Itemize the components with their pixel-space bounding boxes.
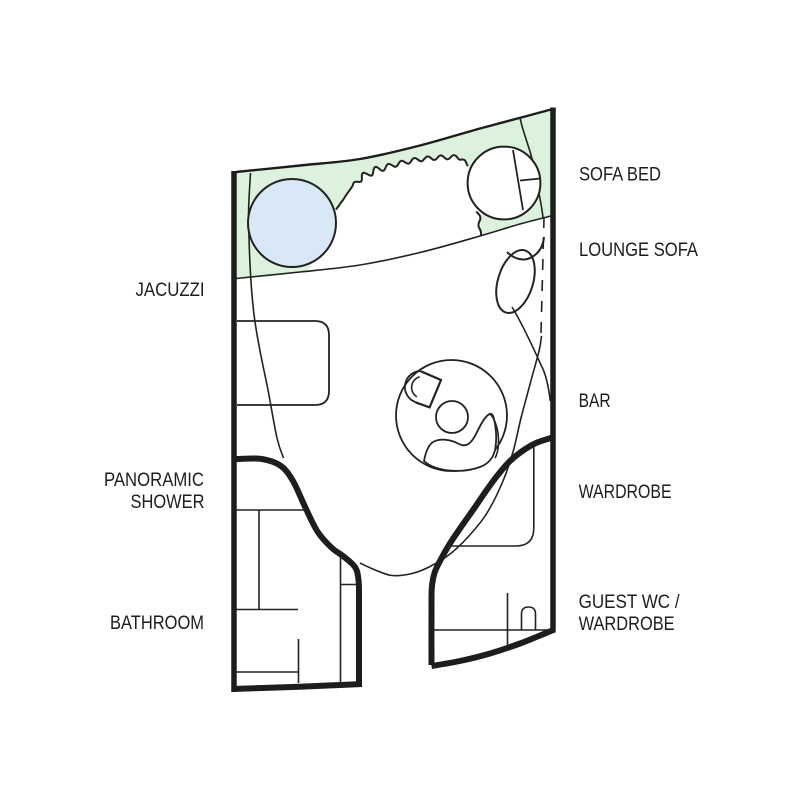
svg-text:WARDROBE: WARDROBE [579,481,672,503]
svg-text:PANORAMIC: PANORAMIC [104,469,204,491]
svg-text:JACUZZI: JACUZZI [136,279,205,301]
svg-text:BAR: BAR [579,390,611,412]
svg-text:BATHROOM: BATHROOM [110,612,204,634]
svg-text:LOUNGE SOFA: LOUNGE SOFA [579,239,699,261]
svg-text:GUEST WC /: GUEST WC / [579,591,680,613]
svg-text:SHOWER: SHOWER [131,491,205,513]
svg-text:WARDROBE: WARDROBE [579,613,675,635]
svg-text:SOFA BED: SOFA BED [579,164,661,186]
